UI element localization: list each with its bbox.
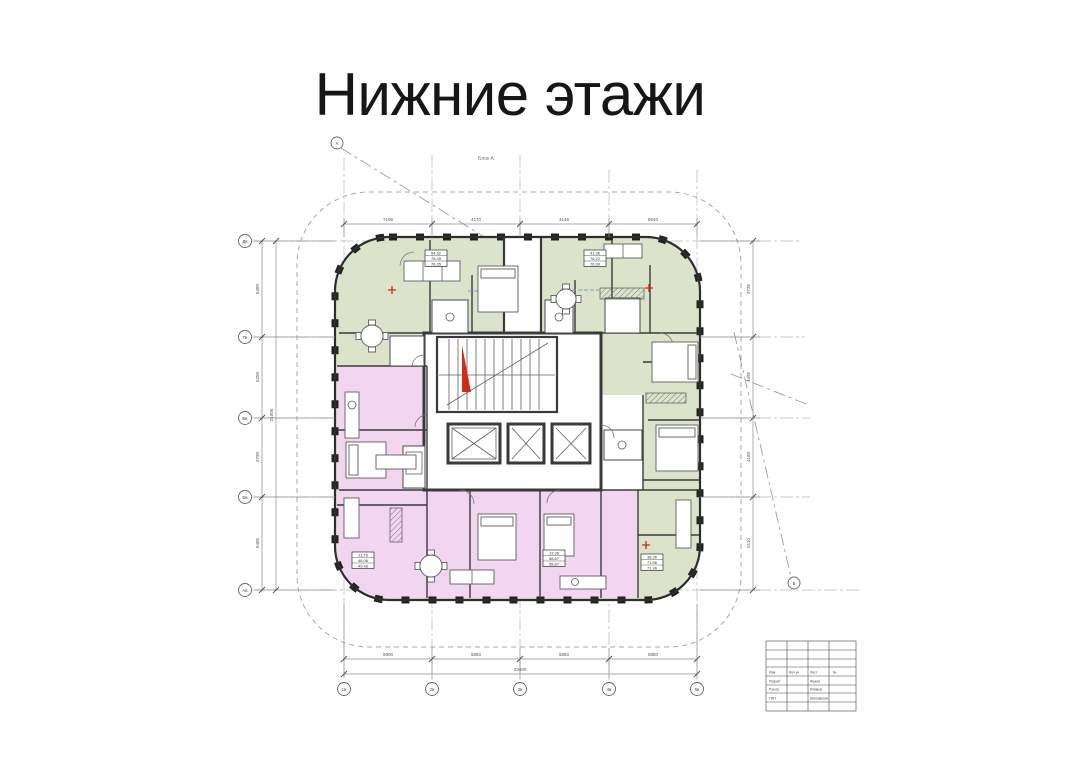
stamp-value: 58.67 [549, 556, 560, 561]
titleblock-cell: Жуков [810, 680, 820, 684]
axis-label: Вв [242, 416, 248, 421]
wardrobe [390, 508, 402, 542]
titleblock-cell: Климов [810, 688, 822, 692]
axis-label: Гв [243, 335, 248, 340]
dim-value: 6480 [255, 283, 260, 294]
dim-value: 5900 [383, 652, 394, 657]
dim-value: 4160 [746, 451, 751, 462]
dim-value: 7195 [383, 217, 394, 222]
axis-label: 3в [518, 687, 523, 692]
axis-bubble-right-diagonal: Б [788, 577, 800, 589]
left-dimension-chain: 6480 5250 2790 6485 21005 [254, 238, 335, 593]
dim-value: 5850 [559, 652, 570, 657]
area-stamp: 64.32 76.35 76.35 [425, 250, 447, 267]
area-stamp: 38.36 71.96 71.96 [641, 554, 663, 571]
titleblock-cell: Рук.пр. [769, 688, 780, 692]
bottom-dimension-chain: 5900 5850 5850 5880 23480 [341, 604, 700, 678]
stamp-value: 46.06 [358, 558, 369, 563]
stamp-value: 76.35 [431, 256, 442, 261]
area-stamp: 13.36 58.67 58.87 [543, 550, 565, 567]
axis-bubble-top-diagonal: А [331, 137, 343, 149]
area-stamp: 11.76 46.06 49.46 [352, 552, 374, 569]
block-label: Блок А [478, 156, 495, 162]
wardrobe [600, 288, 644, 299]
dim-value: 5110 [746, 538, 751, 548]
stamp-value: 71.96 [647, 560, 658, 565]
axis-label: 1в [342, 687, 347, 692]
stamp-value: 58.87 [549, 561, 560, 566]
stamp-value: 71.96 [647, 565, 658, 570]
titleblock-cell: Кол.уч [789, 671, 799, 675]
floor-plan-drawing: 64.32 76.35 76.35 41.36 76.22 76.30 11.7… [0, 0, 1072, 768]
dim-value: 5880 [648, 652, 659, 657]
axis-label: Б [793, 581, 796, 586]
titleblock-cell: Шаповалов [810, 697, 828, 701]
titleblock-cell: № [833, 671, 837, 675]
dim-value: 4495 [746, 371, 751, 382]
dim-value: 3145 [559, 217, 570, 222]
titleblock-table: Изм Кол.уч Лист № Разраб Жуков Рук.пр. К… [766, 641, 856, 711]
stamp-value: 64.32 [431, 250, 442, 255]
stamp-value: 49.46 [358, 563, 369, 568]
stamp-value: 41.36 [590, 250, 601, 255]
slide-canvas: Нижние этажи [0, 0, 1072, 768]
dim-value: 6485 [255, 537, 260, 548]
stamp-value: 76.35 [431, 261, 442, 266]
axis-label: А [336, 141, 339, 146]
stamp-value: 13.36 [549, 550, 560, 555]
axis-label: Дв [242, 239, 248, 244]
wardrobe [646, 393, 686, 403]
stamp-value: 76.22 [590, 256, 601, 261]
titleblock-cell: ГИП [769, 697, 776, 701]
dim-value: 8640 [648, 217, 659, 222]
titleblock-cell: Лист [810, 671, 818, 675]
stamp-value: 11.76 [358, 552, 368, 557]
axis-label: Бв [242, 495, 248, 500]
stamp-value: 38.36 [647, 554, 658, 559]
titleblock-cell: Разраб [769, 680, 780, 684]
axis-bubbles-left: Дв Гв Вв Бв Ав [239, 235, 252, 597]
dim-total: 23480 [514, 667, 527, 672]
titleblock-cell: Изм [769, 671, 776, 675]
axis-label: 4в [607, 687, 612, 692]
dim-total: 21005 [269, 408, 274, 421]
axis-bubbles-bottom: 1в 2в 3в 4в 5в [338, 683, 704, 696]
axis-label: Ав [242, 588, 248, 593]
dim-value: 4170 [471, 217, 482, 222]
axis-label: 5в [695, 687, 700, 692]
axis-label: 2в [430, 687, 435, 692]
dim-value: 2790 [255, 451, 260, 462]
dim-value: 3735 [746, 283, 751, 294]
dim-value: 5250 [255, 371, 260, 382]
stamp-value: 76.30 [590, 261, 601, 266]
right-dimension-chain: 3735 4495 4160 5110 [700, 238, 760, 593]
area-stamp: 41.36 76.22 76.30 [584, 250, 606, 267]
dim-value: 5850 [471, 652, 482, 657]
